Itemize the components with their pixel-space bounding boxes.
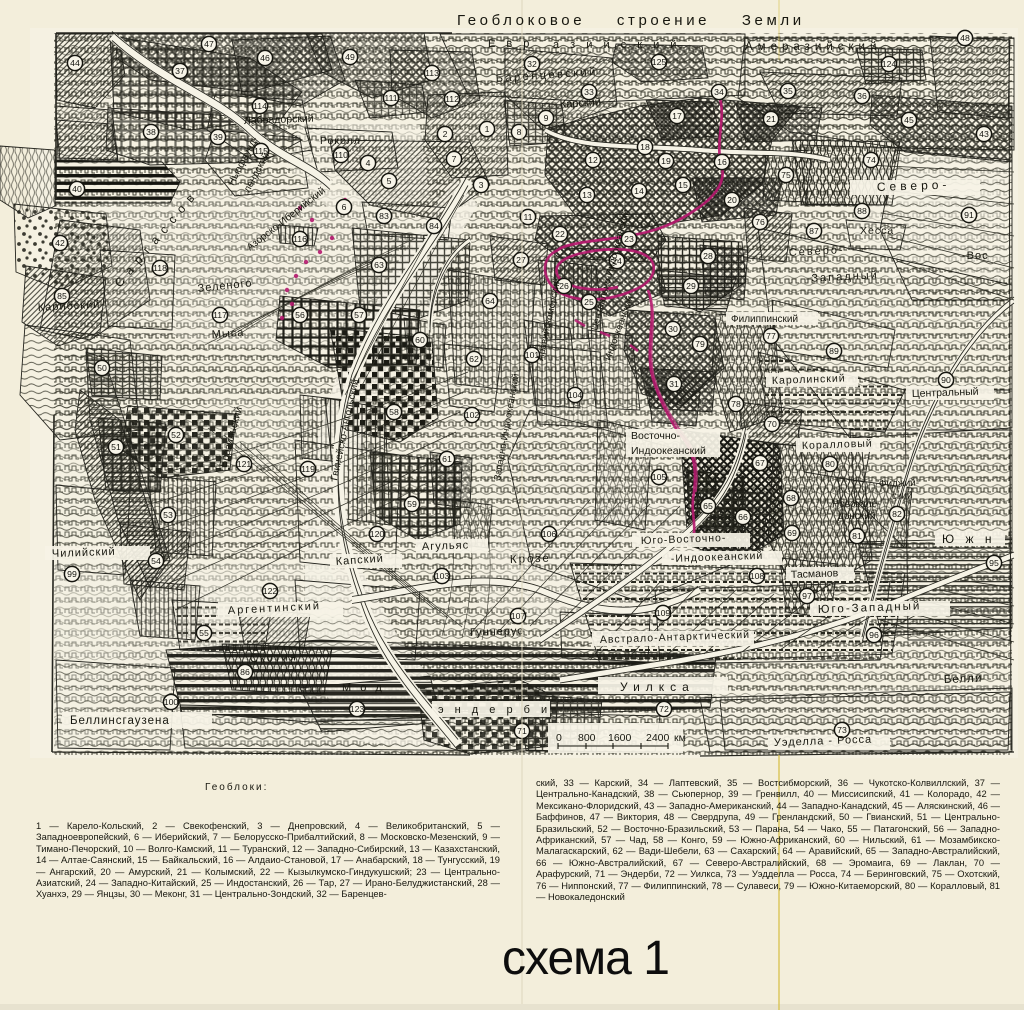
svg-text:12: 12 <box>588 155 598 165</box>
svg-text:80: 80 <box>825 459 835 469</box>
svg-text:84: 84 <box>429 221 439 231</box>
svg-text:Филиппинский: Филиппинский <box>731 314 798 325</box>
svg-text:21: 21 <box>766 114 776 124</box>
svg-text:ский: ский <box>892 490 913 502</box>
svg-text:Гуннерус: Гуннерус <box>470 625 524 639</box>
svg-text:донский: донский <box>838 511 875 522</box>
svg-text:49: 49 <box>345 52 355 62</box>
svg-text:48: 48 <box>960 33 970 43</box>
svg-text:Центральный: Центральный <box>912 386 979 400</box>
svg-text:95: 95 <box>989 558 999 568</box>
svg-text:112: 112 <box>445 94 459 104</box>
svg-text:Амеразийский: Амеразийский <box>745 41 881 53</box>
svg-text:Белли: Белли <box>944 673 983 686</box>
svg-text:Фиджий-: Фиджий- <box>879 478 920 490</box>
svg-text:32: 32 <box>527 59 537 69</box>
svg-text:0: 0 <box>556 732 562 744</box>
svg-text:118: 118 <box>153 263 167 273</box>
svg-text:27: 27 <box>516 255 526 265</box>
svg-text:99: 99 <box>67 569 77 579</box>
svg-text:37: 37 <box>175 66 185 76</box>
svg-text:Роколл: Роколл <box>320 135 361 147</box>
svg-text:Индоокеанский: Индоокеанский <box>631 445 706 457</box>
svg-text:5: 5 <box>387 176 392 186</box>
svg-text:46: 46 <box>260 53 270 63</box>
svg-text:км: км <box>674 732 686 744</box>
svg-text:Мыса: Мыса <box>211 327 244 341</box>
svg-text:108: 108 <box>750 571 765 581</box>
svg-text:79: 79 <box>695 339 705 349</box>
svg-text:111: 111 <box>384 93 397 103</box>
svg-text:103: 103 <box>435 571 450 581</box>
svg-text:19: 19 <box>661 156 671 166</box>
svg-text:Лабрадорский: Лабрадорский <box>244 113 314 127</box>
svg-text:107: 107 <box>511 611 526 621</box>
svg-text:83: 83 <box>379 211 389 221</box>
svg-text:2400: 2400 <box>646 732 670 744</box>
svg-text:50: 50 <box>97 363 107 373</box>
svg-text:47: 47 <box>204 39 214 49</box>
svg-text:60: 60 <box>415 335 425 345</box>
svg-text:125: 125 <box>652 57 667 67</box>
svg-text:91: 91 <box>964 210 974 220</box>
svg-text:Хесса: Хесса <box>860 225 894 237</box>
svg-text:М о д: М о д <box>342 682 385 694</box>
svg-text:34: 34 <box>714 87 724 97</box>
svg-text:36: 36 <box>857 91 867 101</box>
svg-text:35: 35 <box>783 86 793 96</box>
svg-text:Восточно-: Восточно- <box>631 430 681 442</box>
svg-text:42: 42 <box>55 238 65 248</box>
svg-text:28: 28 <box>703 251 713 261</box>
svg-text:40: 40 <box>72 184 82 194</box>
svg-text:43: 43 <box>979 129 989 139</box>
svg-text:67: 67 <box>755 458 765 468</box>
svg-text:11: 11 <box>523 212 532 222</box>
svg-text:2: 2 <box>443 129 448 139</box>
svg-text:14: 14 <box>634 186 644 196</box>
svg-text:75: 75 <box>781 170 791 180</box>
svg-text:114: 114 <box>253 101 267 111</box>
svg-text:62: 62 <box>469 354 479 364</box>
svg-text:7: 7 <box>452 154 457 164</box>
svg-text:110: 110 <box>334 150 348 160</box>
svg-text:77: 77 <box>766 331 776 341</box>
svg-text:4: 4 <box>366 158 371 168</box>
svg-text:96: 96 <box>869 630 879 640</box>
svg-text:76: 76 <box>755 217 765 227</box>
svg-text:102: 102 <box>465 410 480 420</box>
svg-text:38: 38 <box>146 127 156 137</box>
svg-text:Агульяс: Агульяс <box>422 539 470 553</box>
svg-text:20: 20 <box>727 195 737 205</box>
svg-text:57: 57 <box>354 310 364 320</box>
svg-text:8: 8 <box>517 127 522 137</box>
svg-text:82: 82 <box>892 509 902 519</box>
svg-text:100: 100 <box>164 697 179 707</box>
svg-text:Уилкса: Уилкса <box>620 680 695 694</box>
svg-text:33: 33 <box>584 87 594 97</box>
svg-text:39: 39 <box>213 132 223 142</box>
svg-text:31: 31 <box>669 379 679 389</box>
svg-text:э н д е р б и: э н д е р б и <box>438 704 551 716</box>
svg-text:70: 70 <box>767 419 777 429</box>
svg-text:52: 52 <box>171 430 181 440</box>
svg-text:Новокале-: Новокале- <box>832 499 880 510</box>
svg-text:64: 64 <box>485 296 495 306</box>
svg-text:58: 58 <box>389 407 399 417</box>
svg-text:17: 17 <box>672 111 682 121</box>
svg-text:122: 122 <box>263 586 278 596</box>
svg-text:90: 90 <box>941 375 951 385</box>
svg-text:63: 63 <box>374 260 384 270</box>
svg-text:Ю ж н: Ю ж н <box>942 532 995 546</box>
svg-text:Беллинсгаузена: Беллинсгаузена <box>70 715 170 727</box>
svg-text:Скотия: Скотия <box>250 651 298 665</box>
svg-text:29: 29 <box>686 281 696 291</box>
svg-text:22: 22 <box>555 229 565 239</box>
svg-text:87: 87 <box>809 226 819 236</box>
svg-text:9: 9 <box>544 113 549 123</box>
svg-text:69: 69 <box>787 528 797 538</box>
svg-text:1600: 1600 <box>608 732 632 744</box>
svg-text:68: 68 <box>786 493 796 503</box>
svg-text:800: 800 <box>578 732 596 744</box>
svg-text:117: 117 <box>213 310 227 320</box>
svg-text:113: 113 <box>425 68 439 78</box>
svg-text:53: 53 <box>163 510 173 520</box>
svg-text:-Вос: -Вос <box>962 250 989 262</box>
svg-text:15: 15 <box>678 180 688 190</box>
svg-text:109: 109 <box>656 608 671 618</box>
svg-text:72: 72 <box>659 704 669 714</box>
svg-text:61: 61 <box>442 454 452 464</box>
svg-text:44: 44 <box>70 58 80 68</box>
svg-text:81: 81 <box>852 531 862 541</box>
svg-text:6: 6 <box>342 202 347 212</box>
svg-text:45: 45 <box>904 115 914 125</box>
svg-text:59: 59 <box>407 499 417 509</box>
svg-text:106: 106 <box>542 529 557 539</box>
svg-text:124: 124 <box>882 59 897 69</box>
svg-text:Е в р: Е в р <box>488 38 533 50</box>
svg-text:104: 104 <box>568 390 583 400</box>
svg-text:1: 1 <box>485 124 490 134</box>
svg-text:Коралловый: Коралловый <box>802 438 873 452</box>
svg-text:13: 13 <box>582 190 592 200</box>
svg-text:123: 123 <box>350 704 365 714</box>
svg-text:а з и й с к и й: а з и й с к и й <box>553 39 680 51</box>
svg-text:54: 54 <box>151 556 161 566</box>
svg-text:Тасманов: Тасманов <box>791 567 839 581</box>
svg-text:51: 51 <box>111 442 121 452</box>
svg-text:119: 119 <box>301 464 315 474</box>
svg-text:116: 116 <box>293 234 307 244</box>
svg-text:97: 97 <box>802 591 812 601</box>
svg-text:3: 3 <box>479 180 484 190</box>
svg-text:88: 88 <box>857 206 867 216</box>
svg-text:121: 121 <box>237 459 252 469</box>
svg-text:78: 78 <box>731 399 741 409</box>
svg-text:56: 56 <box>295 310 305 320</box>
svg-text:65: 65 <box>703 501 713 511</box>
svg-text:Северо-: Северо- <box>877 177 951 194</box>
svg-text:16: 16 <box>717 157 727 167</box>
svg-text:89: 89 <box>829 346 839 356</box>
svg-text:25: 25 <box>584 297 594 307</box>
svg-text:86: 86 <box>240 667 250 677</box>
svg-text:30: 30 <box>668 324 678 334</box>
svg-text:105: 105 <box>652 472 667 482</box>
svg-text:66: 66 <box>738 512 748 522</box>
svg-text:Чилийский: Чилийский <box>52 546 116 560</box>
svg-text:74: 74 <box>866 155 876 165</box>
svg-text:18: 18 <box>640 142 650 152</box>
svg-text:120: 120 <box>370 529 385 539</box>
svg-text:Крозе: Крозе <box>510 553 551 566</box>
svg-text:55: 55 <box>199 628 209 638</box>
